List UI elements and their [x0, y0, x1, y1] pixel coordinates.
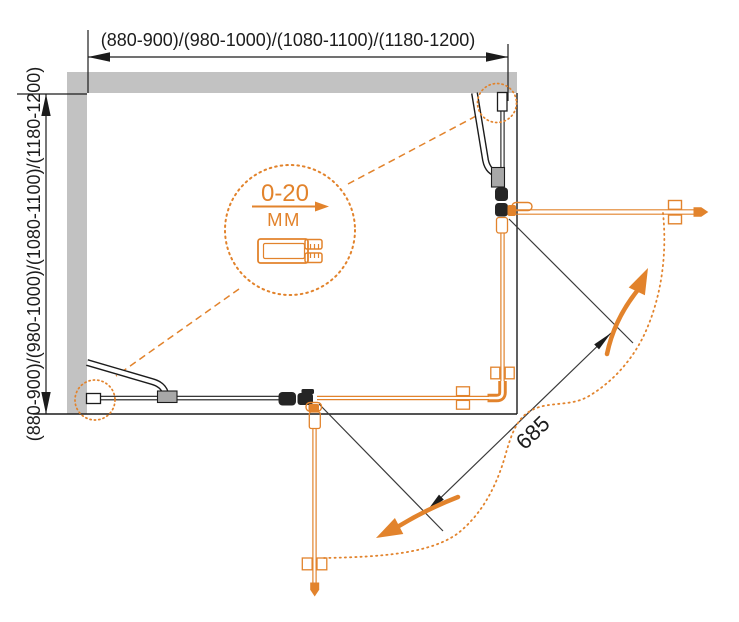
support-bar-mount [158, 391, 178, 403]
wall-profile-top [498, 93, 508, 112]
depth-dimension-label: (880-900)/(980-1000)/(1080-1100)/(1180-1… [24, 67, 44, 442]
background [0, 0, 739, 622]
detail-callout: 0-20 ММ [225, 165, 355, 295]
wall-left [67, 72, 87, 414]
wall-top [67, 72, 517, 93]
support-bar-mount [492, 168, 505, 188]
adjustment-range-label: 0-20 [261, 180, 309, 207]
width-dimension-label: (880-900)/(980-1000)/(1080-1100)/(1180-1… [101, 30, 476, 50]
adjustment-unit-label: ММ [267, 209, 301, 230]
wall-profile-left [87, 394, 101, 404]
shower-enclosure-diagram: (880-900)/(980-1000)/(1080-1100)/(1180-1… [0, 0, 739, 622]
